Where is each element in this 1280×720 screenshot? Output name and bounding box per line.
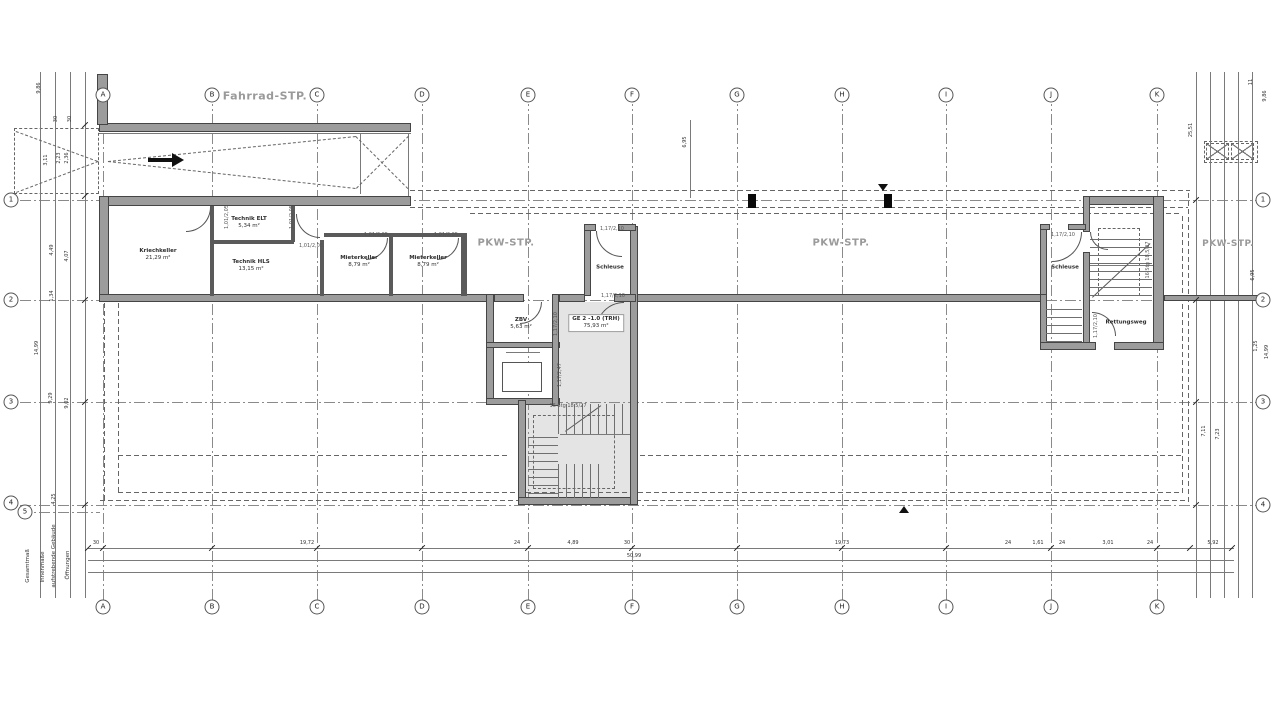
dim-label: 1,17/2,47 (558, 363, 564, 387)
dim-label: 1,17/2,10 (601, 294, 625, 300)
dimension-line (560, 434, 630, 435)
dimension-line (85, 72, 86, 598)
room-label: ZBV5,63 m² (510, 317, 532, 331)
grid-bubble-A: A (96, 88, 111, 103)
elevator-car (502, 362, 542, 392)
wall-segment (559, 294, 585, 302)
grid-line-J (1051, 104, 1052, 600)
grid-bubble-B: B (205, 600, 220, 615)
grid-bubble-K: K (1150, 88, 1165, 103)
dim-label: 14,99 (1265, 345, 1271, 359)
room-area: 75,93 m² (572, 323, 620, 330)
ramp-arrow-head (172, 153, 184, 167)
dim-label: 3,11 (44, 154, 50, 165)
grid-line-D (422, 104, 423, 600)
grid-bubble-4: 4 (1256, 498, 1271, 513)
dim-label: 6,95 (683, 136, 689, 147)
dim-label: 1,17/2,10 (600, 227, 624, 233)
grid-bubble-F: F (625, 600, 640, 615)
dashed-line (1188, 190, 1189, 502)
room-label: Kriechkeller21,29 m² (139, 248, 176, 262)
room-name: Technik ELT (231, 216, 266, 223)
grid-bubble-I: I (939, 88, 954, 103)
grid-line-H (842, 104, 843, 600)
dashed-line (470, 213, 1182, 214)
room-name: Kriechkeller (139, 248, 176, 255)
room-name: Technik HLS (232, 259, 269, 266)
dim-label: 4,25 (52, 493, 58, 504)
room-label: GE 2 -1.0 (TRH)75,93 m² (568, 314, 624, 332)
dimension-line (506, 352, 540, 353)
room-area: 8,79 m² (409, 262, 447, 269)
grid-bubble-I: I (939, 600, 954, 615)
wall-segment (1083, 196, 1161, 205)
direction-marker (878, 184, 888, 191)
room-label: Mieterkeller8,79 m² (409, 255, 447, 269)
dashed-line (100, 500, 1188, 501)
stair-treads (558, 464, 606, 498)
wall-segment (99, 196, 411, 206)
dim-label: 16 Stg 18,5/27 (549, 404, 586, 410)
dim-label: 1,01/2,05 (225, 205, 231, 229)
dashed-line (104, 302, 105, 500)
dimension-line (55, 72, 56, 598)
dim-label: aufstrebende Gebäude (51, 524, 57, 587)
ramp-arrow-shaft (148, 158, 172, 162)
dim-label: Innenmaße (40, 551, 46, 582)
grid-bubble-J: J (1044, 88, 1059, 103)
grid-line-3 (20, 402, 1256, 403)
dim-label: 30 (54, 116, 60, 122)
grid-bubble-1: 1 (4, 193, 19, 208)
dim-label: 5,92 (1207, 541, 1218, 547)
dim-label: 30 (93, 541, 99, 547)
room-label: Schleuse (1051, 265, 1079, 272)
grid-bubble-J: J (1044, 600, 1059, 615)
dim-label: 19,73 (835, 541, 849, 547)
room-area: 21,29 m² (139, 255, 176, 262)
dim-label: 11 (1249, 79, 1255, 85)
wall-segment (486, 342, 560, 348)
dim-label: 3,01 (1102, 541, 1113, 547)
area-label: PKW-STP. (1202, 239, 1254, 249)
dashed-line (1182, 213, 1183, 493)
grid-bubble-5: 5 (18, 505, 33, 520)
dim-label: 1,34 (50, 290, 56, 301)
dim-label: 24 (1005, 541, 1011, 547)
dim-label: 24 (1059, 541, 1065, 547)
grid-line-C (317, 104, 318, 600)
wall-segment (518, 400, 526, 504)
room-label: Rettungsweg (1105, 320, 1146, 327)
grid-bubble-A: A (96, 600, 111, 615)
grid-bubble-B: B (205, 88, 220, 103)
grid-bubble-3: 3 (4, 395, 19, 410)
grid-bubble-3: 3 (1256, 395, 1271, 410)
column (884, 194, 892, 208)
grid-line-4 (20, 505, 1256, 506)
wall-segment (584, 224, 596, 231)
grid-bubble-2: 2 (4, 293, 19, 308)
grid-bubble-C: C (310, 88, 325, 103)
grid-bubble-1: 1 (1256, 193, 1271, 208)
dashed-line (118, 492, 1182, 493)
stair-treads (528, 436, 558, 494)
grid-bubble-H: H (835, 600, 850, 615)
wall-segment (1164, 295, 1258, 301)
dimension-line (88, 572, 1234, 573)
grid-bubble-F: F (625, 88, 640, 103)
dim-tick (1229, 545, 1235, 551)
partition-wall (389, 236, 393, 296)
dimension-line (88, 548, 1234, 549)
grid-bubble-K: K (1150, 600, 1165, 615)
dim-label: 7,23 (1216, 428, 1222, 439)
partition-wall (214, 240, 294, 244)
dim-label: 50,99 (627, 554, 641, 560)
room-name: Schleuse (596, 265, 624, 272)
dashed-line (410, 207, 1188, 208)
dim-label: 2,23 (57, 152, 63, 163)
room-label: Schleuse (596, 265, 624, 272)
dimension-line (408, 134, 409, 196)
wall-segment (1114, 342, 1164, 350)
grid-line-K (1157, 104, 1158, 600)
dim-label: 1,17/2,10 (1051, 233, 1075, 239)
dimension-line (690, 120, 691, 198)
dim-label: 6,95 (1251, 269, 1257, 280)
room-label: Technik HLS13,15 m² (232, 259, 269, 273)
dim-label: 9,29 (49, 392, 55, 403)
wall-segment (99, 294, 489, 302)
ramp-line (108, 136, 356, 162)
dim-label: 16 Stg 18,5/27 (1146, 241, 1152, 278)
column (748, 194, 756, 208)
dim-label: 14,99 (35, 341, 41, 355)
dim-label: 30 (68, 116, 74, 122)
dim-label: 1,61 (1032, 541, 1043, 547)
dimension-line (99, 133, 411, 134)
dim-label: Gesamtmaß (25, 549, 31, 583)
grid-bubble-4: 4 (4, 496, 19, 511)
door-arc (596, 231, 622, 257)
grid-line-G (737, 104, 738, 600)
wall-segment (1040, 224, 1050, 230)
dim-label: 1,17/2,10 (1094, 314, 1100, 338)
grid-bubble-D: D (415, 88, 430, 103)
room-area: 8,79 m² (340, 262, 378, 269)
room-area: 5,63 m² (510, 324, 532, 331)
grid-line-I (946, 104, 947, 600)
grid-line-B (212, 104, 213, 600)
grid-bubble-E: E (521, 600, 536, 615)
room-name: Schleuse (1051, 265, 1079, 272)
room-name: Mieterkeller (340, 255, 378, 262)
room-label: Technik ELT5,34 m² (231, 216, 266, 230)
dim-label: 24 (1147, 541, 1153, 547)
stair-treads (1046, 302, 1082, 342)
fahrrad-stp-label: Fahrrad-STP. (223, 91, 307, 104)
dim-label: 1,01/2,05 (299, 244, 323, 250)
room-area: 5,34 m² (231, 223, 266, 230)
dim-label: 9,86 (37, 82, 43, 93)
room-name: Rettungsweg (1105, 320, 1146, 327)
dashed-line (118, 455, 510, 456)
room-name: GE 2 -1.0 (TRH) (572, 316, 620, 323)
wall-segment (494, 294, 524, 302)
grid-bubble-G: G (730, 600, 745, 615)
room-area: 13,15 m² (232, 266, 269, 273)
partition-wall (461, 233, 467, 296)
dashed-line (118, 302, 119, 492)
area-label: PKW-STP. (812, 237, 869, 249)
dim-label: 1,01/2,05 (434, 233, 458, 239)
area-label: PKW-STP. (477, 237, 534, 249)
dashed-line (640, 455, 1182, 456)
dim-label: 19,72 (300, 541, 314, 547)
dim-label: 4,49 (50, 244, 56, 255)
dim-label: 1,25 (1254, 340, 1260, 351)
wall-segment (636, 294, 1042, 302)
wall-segment (1153, 196, 1164, 349)
grid-bubble-D: D (415, 600, 430, 615)
grid-bubble-E: E (521, 88, 536, 103)
grid-bubble-G: G (730, 88, 745, 103)
dim-label: 2,36 (65, 152, 71, 163)
wall-segment (552, 294, 559, 406)
wall-segment (1040, 224, 1047, 304)
room-name: Mieterkeller (409, 255, 447, 262)
direction-marker (899, 506, 909, 513)
dim-label: Öffnungen (65, 551, 71, 580)
dim-label: 9,02 (65, 397, 71, 408)
wall-segment (486, 294, 494, 404)
wall-segment (518, 497, 638, 505)
partition-wall (210, 206, 214, 296)
dim-label: 25,51 (1189, 123, 1195, 137)
dim-label: 1,01/2,05 (290, 205, 296, 229)
wall-segment (1083, 252, 1090, 348)
dimension-line (1196, 72, 1197, 598)
dim-label: 9,86 (1263, 90, 1269, 101)
wall-segment (99, 123, 411, 132)
grid-bubble-H: H (835, 88, 850, 103)
dashed-line (410, 190, 1190, 191)
dim-label: 7,11 (1202, 425, 1208, 436)
door-arc (296, 214, 320, 238)
dimension-line (40, 72, 41, 598)
dim-label: 24 (514, 541, 520, 547)
dim-label: 1,17/2,10 (554, 312, 560, 336)
dim-label: 1,01/2,05 (364, 233, 388, 239)
door-arc (186, 207, 211, 232)
dim-label: 30 (624, 541, 630, 547)
dim-label: 4,89 (567, 541, 578, 547)
hatched-box (1206, 143, 1229, 160)
hatched-box (1231, 143, 1254, 160)
wall-segment (584, 226, 591, 296)
wall-segment (630, 226, 638, 505)
room-name: ZBV (510, 317, 532, 324)
wall-segment (1068, 224, 1086, 230)
wall-segment (99, 196, 109, 302)
dim-label: 4,07 (65, 250, 71, 261)
room-label: Mieterkeller8,79 m² (340, 255, 378, 269)
wall-segment (1040, 342, 1096, 350)
ramp-line (108, 161, 356, 189)
floorplan-canvas: Fahrrad-STP. PKW-STP.PKW-STP.PKW-STP.301… (0, 0, 1280, 720)
grid-bubble-C: C (310, 600, 325, 615)
dimension-line (88, 560, 1234, 561)
grid-bubble-2: 2 (1256, 293, 1271, 308)
